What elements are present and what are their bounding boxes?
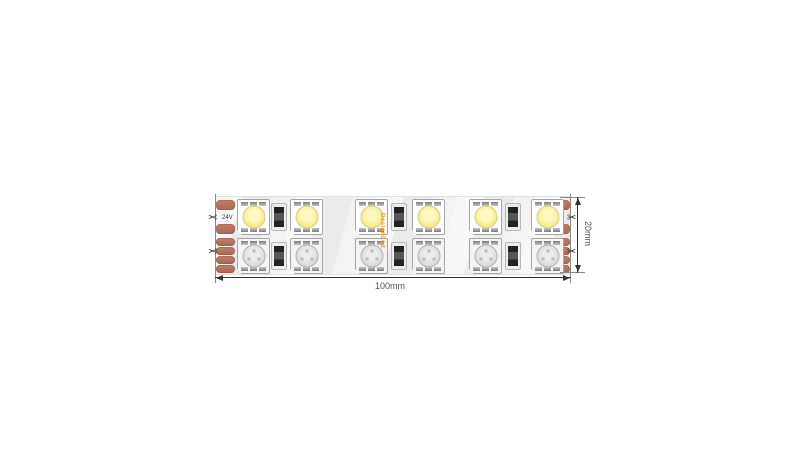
solder-pad-left-24v (216, 238, 235, 246)
resistor (505, 242, 521, 270)
dimension-line-vertical (577, 197, 578, 273)
white-led-lens (417, 206, 440, 229)
left-voltage-label: 24V (222, 215, 233, 222)
white-led-lens (474, 206, 497, 229)
white-led-package (412, 199, 445, 235)
width-dimension-label: 100mm (375, 281, 405, 291)
resistor (391, 203, 407, 231)
solder-pad-left-g (216, 256, 235, 264)
extension-line-bottom (560, 272, 585, 273)
led-contacts (535, 267, 560, 271)
solder-pad-left-plus (216, 200, 235, 210)
led-strip-diagram: + 24V - 24V R G B + 24V - 24V R G B ✂ ✂ … (0, 0, 800, 450)
rgb-led-lens (295, 245, 318, 268)
led-contacts (416, 228, 441, 232)
led-contacts (535, 228, 560, 232)
rgb-led-package (469, 238, 502, 274)
resistor (271, 242, 287, 270)
rgb-led-lens (242, 245, 265, 268)
arrow-left-icon (216, 275, 223, 281)
led-contacts (416, 267, 441, 271)
resistor (271, 203, 287, 231)
dimension-line-horizontal (215, 277, 571, 278)
white-led-lens (295, 206, 318, 229)
led-contacts (473, 267, 498, 271)
rgb-led-package (237, 238, 270, 274)
scissors-icon: ✂ (208, 213, 217, 224)
rgb-led-package (531, 238, 564, 274)
cut-line-right (570, 194, 571, 283)
extension-line-top (560, 197, 585, 198)
brand-print: DesignLed (379, 213, 385, 253)
rgb-led-lens (474, 245, 497, 268)
arrow-up-icon (575, 198, 581, 205)
white-led-lens (536, 206, 559, 229)
white-led-lens (242, 206, 265, 229)
height-dimension-label: 20mm (583, 221, 593, 246)
white-led-package (290, 199, 323, 235)
solder-pad-left-minus (216, 224, 235, 234)
rgb-led-lens (417, 245, 440, 268)
led-contacts (294, 228, 319, 232)
rgb-led-lens (536, 245, 559, 268)
white-led-package (469, 199, 502, 235)
solder-pad-left-b (216, 265, 235, 273)
arrow-down-icon (575, 265, 581, 272)
rgb-led-package (412, 238, 445, 274)
scissors-icon: ✂ (208, 247, 217, 258)
led-contacts (473, 228, 498, 232)
led-contacts (241, 267, 266, 271)
resistor (505, 203, 521, 231)
solder-pad-left-r (216, 247, 235, 255)
rgb-led-package (290, 238, 323, 274)
arrow-right-icon (563, 275, 570, 281)
scissors-icon: ✂ (567, 213, 576, 224)
resistor (391, 242, 407, 270)
white-led-package (237, 199, 270, 235)
led-contacts (241, 228, 266, 232)
scissors-icon: ✂ (567, 247, 576, 258)
led-contacts (359, 267, 384, 271)
white-led-package (531, 199, 564, 235)
led-contacts (294, 267, 319, 271)
